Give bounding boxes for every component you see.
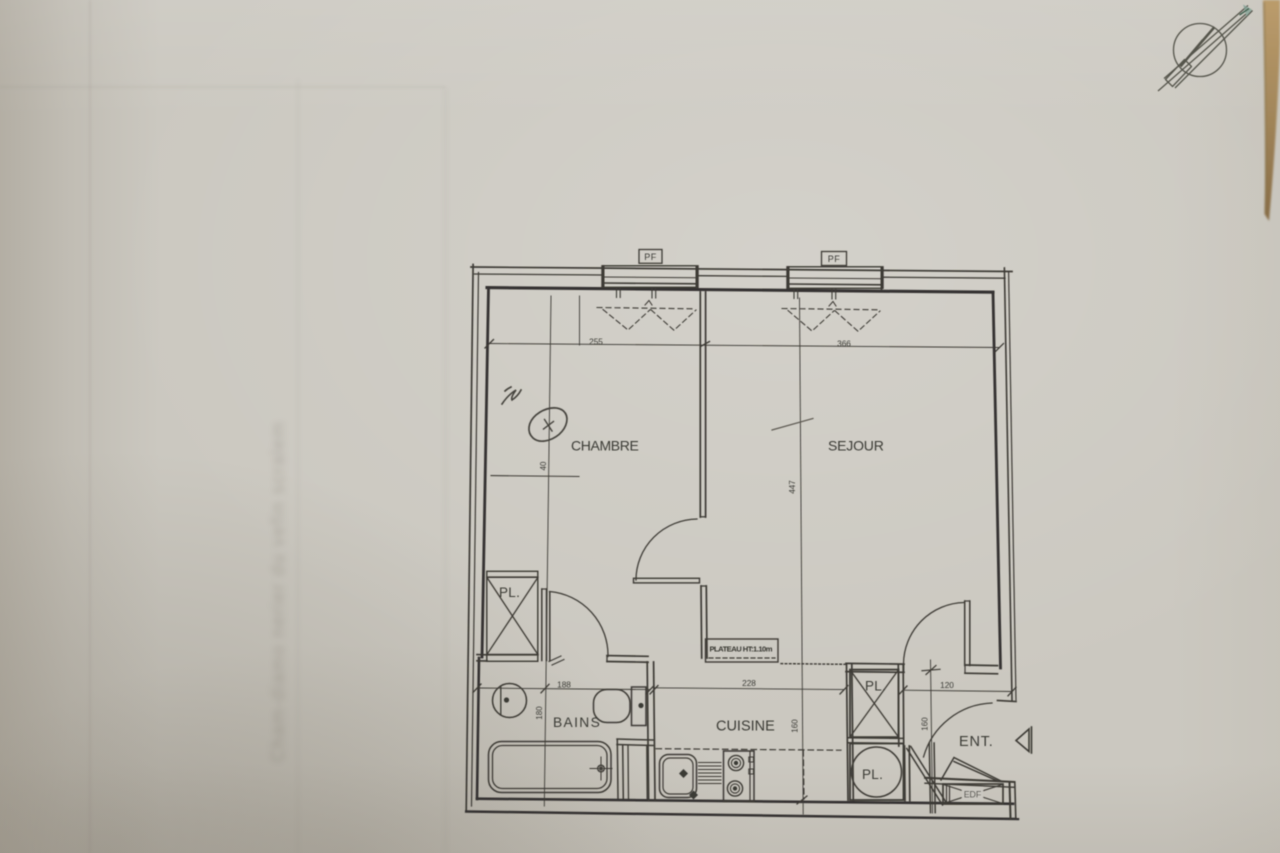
svg-text:CUISINE: CUISINE	[716, 719, 775, 735]
svg-text:PL.: PL.	[865, 679, 886, 694]
svg-text:PF: PF	[828, 254, 841, 264]
svg-text:447: 447	[788, 480, 797, 494]
svg-text:ENT.: ENT.	[959, 734, 993, 750]
svg-text:255: 255	[589, 337, 603, 347]
svg-text:SEJOUR: SEJOUR	[828, 438, 884, 454]
svg-text:120: 120	[940, 680, 954, 690]
svg-text:PLATEAU HT:1.10m: PLATEAU HT:1.10m	[710, 645, 773, 654]
svg-text:228: 228	[742, 678, 756, 688]
svg-text:160: 160	[791, 719, 800, 733]
svg-text:PF: PF	[644, 252, 657, 262]
svg-text:40: 40	[539, 461, 548, 470]
svg-text:180: 180	[535, 706, 544, 720]
svg-text:CHAMBRE: CHAMBRE	[571, 438, 639, 454]
svg-text:160: 160	[921, 717, 930, 731]
svg-text:EDF: EDF	[964, 790, 982, 800]
svg-text:BAINS: BAINS	[553, 715, 600, 730]
svg-text:PL.: PL.	[862, 767, 883, 782]
svg-text:188: 188	[557, 680, 571, 690]
svg-text:PL.: PL.	[499, 585, 520, 600]
svg-text:366: 366	[837, 339, 851, 349]
